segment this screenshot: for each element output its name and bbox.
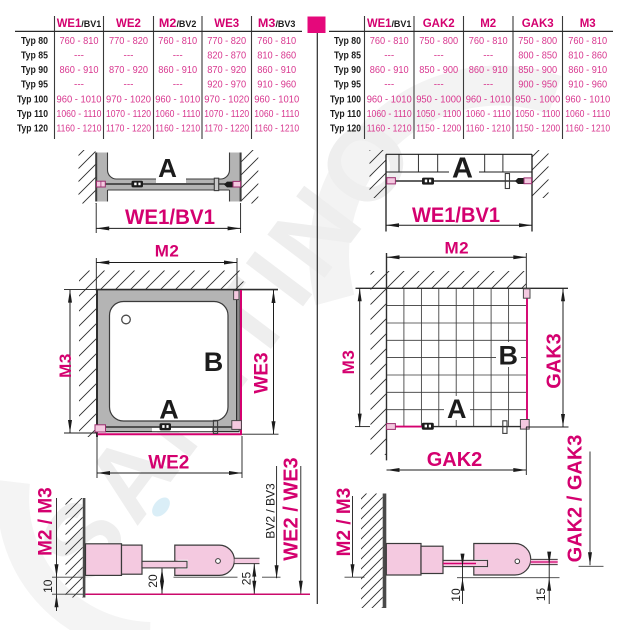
svg-text:1160 - 1210: 1160 - 1210 [155, 123, 200, 135]
svg-text:BV2 / BV3: BV2 / BV3 [263, 483, 277, 539]
svg-text:---: --- [124, 51, 134, 62]
svg-text:A: A [452, 153, 473, 185]
svg-text:810 - 860: 810 - 860 [257, 50, 296, 62]
svg-text:950 - 1000: 950 - 1000 [515, 94, 560, 106]
svg-text:770 - 820: 770 - 820 [109, 35, 148, 47]
svg-text:850 - 900: 850 - 900 [518, 64, 557, 76]
svg-text:760 - 810: 760 - 810 [60, 35, 99, 47]
svg-text:Typ 95: Typ 95 [334, 80, 361, 91]
svg-text:900 - 950: 900 - 950 [518, 79, 557, 91]
svg-text:Typ 95: Typ 95 [21, 80, 48, 91]
svg-text:970 - 1020: 970 - 1020 [204, 94, 249, 106]
svg-text:760 - 810: 760 - 810 [568, 35, 607, 47]
svg-text:1060 - 1110: 1060 - 1110 [367, 108, 412, 120]
svg-text:/BV3: /BV3 [275, 19, 295, 30]
svg-text:Typ 80: Typ 80 [334, 36, 361, 47]
svg-text:1060 - 1110: 1060 - 1110 [254, 108, 299, 120]
svg-text:A: A [159, 395, 179, 425]
svg-text:WE1: WE1 [57, 18, 82, 30]
svg-text:1060 - 1110: 1060 - 1110 [466, 108, 511, 120]
svg-text:1160 - 1210: 1160 - 1210 [565, 123, 610, 135]
svg-text:10: 10 [41, 579, 55, 593]
svg-text:M3: M3 [339, 350, 358, 375]
svg-text:---: --- [384, 80, 394, 91]
svg-text:WE3: WE3 [214, 18, 239, 30]
svg-text:---: --- [74, 51, 84, 62]
svg-text:WE2 / WE3: WE2 / WE3 [280, 457, 302, 560]
svg-text:1150 - 1200: 1150 - 1200 [416, 123, 461, 135]
svg-text:GAK2 / GAK3: GAK2 / GAK3 [565, 435, 587, 563]
svg-text:860 - 910: 860 - 910 [158, 64, 197, 76]
svg-text:/BV1: /BV1 [81, 19, 102, 30]
svg-text:750 - 800: 750 - 800 [518, 35, 557, 47]
svg-text:25: 25 [239, 572, 253, 586]
svg-text:1160 - 1210: 1160 - 1210 [57, 123, 102, 135]
svg-text:Typ 110: Typ 110 [17, 109, 48, 120]
svg-text:1070 - 1120: 1070 - 1120 [106, 108, 151, 120]
svg-text:Typ 80: Typ 80 [21, 36, 48, 47]
svg-text:960 - 1010: 960 - 1010 [367, 94, 412, 106]
svg-text:960 - 1010: 960 - 1010 [155, 94, 200, 106]
svg-text:GAK3: GAK3 [544, 333, 566, 389]
svg-text:---: --- [173, 80, 183, 91]
svg-text:Typ 120: Typ 120 [17, 124, 48, 135]
svg-text:860 - 910: 860 - 910 [60, 64, 99, 76]
svg-text:1070 - 1120: 1070 - 1120 [204, 108, 249, 120]
svg-text:760 - 810: 760 - 810 [370, 35, 409, 47]
svg-text:20: 20 [146, 574, 160, 588]
svg-text:850 - 900: 850 - 900 [419, 64, 458, 76]
svg-text:820 - 870: 820 - 870 [207, 50, 246, 62]
svg-text:860 - 910: 860 - 910 [568, 64, 607, 76]
svg-text:870 - 920: 870 - 920 [109, 64, 148, 76]
svg-text:960 - 1010: 960 - 1010 [466, 94, 511, 106]
svg-text:770 - 820: 770 - 820 [207, 35, 246, 47]
svg-text:WE1: WE1 [367, 18, 392, 30]
svg-text:A: A [447, 394, 467, 424]
svg-text:Typ 110: Typ 110 [330, 109, 361, 120]
svg-text:A: A [158, 153, 177, 183]
svg-text:Typ 90: Typ 90 [334, 65, 361, 76]
svg-text:M2: M2 [444, 239, 469, 258]
svg-text:GAK2: GAK2 [427, 449, 483, 471]
svg-text:10: 10 [449, 588, 463, 602]
svg-text:M3: M3 [56, 353, 75, 378]
svg-text:1050 - 1100: 1050 - 1100 [416, 108, 461, 120]
svg-text:Typ 100: Typ 100 [17, 95, 48, 106]
svg-text:1050 - 1100: 1050 - 1100 [515, 108, 560, 120]
svg-text:860 - 910: 860 - 910 [370, 64, 409, 76]
svg-text:M2: M2 [480, 18, 496, 30]
svg-text:GAK3: GAK3 [522, 18, 554, 30]
svg-text:15: 15 [534, 588, 548, 602]
svg-text:910 - 960: 910 - 960 [257, 79, 296, 91]
svg-text:760 - 810: 760 - 810 [469, 35, 508, 47]
svg-text:860 - 910: 860 - 910 [257, 64, 296, 76]
svg-text:/BV1: /BV1 [391, 19, 412, 30]
svg-text:1160 - 1210: 1160 - 1210 [254, 123, 299, 135]
svg-text:M3: M3 [580, 18, 596, 30]
svg-text:960 - 1010: 960 - 1010 [565, 94, 610, 106]
svg-text:760 - 810: 760 - 810 [158, 35, 197, 47]
svg-text:WE2: WE2 [116, 18, 141, 30]
svg-text:970 - 1020: 970 - 1020 [106, 94, 151, 106]
svg-text:M2 / M3: M2 / M3 [36, 487, 57, 556]
svg-text:910 - 960: 910 - 960 [568, 79, 607, 91]
svg-text:950 - 1000: 950 - 1000 [416, 94, 461, 106]
svg-text:1060 - 1110: 1060 - 1110 [565, 108, 610, 120]
svg-text:810 - 860: 810 - 860 [568, 50, 607, 62]
svg-text:---: --- [483, 80, 493, 91]
svg-text:870 - 920: 870 - 920 [207, 64, 246, 76]
svg-text:WE2: WE2 [148, 453, 189, 474]
svg-text:1060 - 1110: 1060 - 1110 [57, 108, 102, 120]
svg-text:M3: M3 [258, 18, 276, 30]
svg-text:Typ 85: Typ 85 [334, 51, 361, 62]
svg-text:WE1/BV1: WE1/BV1 [125, 206, 215, 229]
svg-text:M2 / M3: M2 / M3 [334, 488, 355, 557]
svg-text:---: --- [74, 80, 84, 91]
svg-text:---: --- [384, 51, 394, 62]
svg-text:B: B [204, 347, 224, 377]
svg-text:---: --- [173, 51, 183, 62]
svg-text:Typ 90: Typ 90 [21, 65, 48, 76]
svg-text:960 - 1010: 960 - 1010 [57, 94, 102, 106]
svg-text:M2: M2 [159, 18, 177, 30]
svg-text:1170 - 1220: 1170 - 1220 [106, 123, 151, 135]
svg-text:760 - 810: 760 - 810 [257, 35, 296, 47]
svg-text:1160 - 1210: 1160 - 1210 [367, 123, 412, 135]
svg-text:1060 - 1110: 1060 - 1110 [155, 108, 200, 120]
svg-text:Typ 100: Typ 100 [330, 95, 361, 106]
svg-text:WE1/BV1: WE1/BV1 [412, 204, 500, 227]
svg-text:Typ 85: Typ 85 [21, 51, 48, 62]
svg-text:---: --- [434, 80, 444, 91]
svg-text:920 - 970: 920 - 970 [207, 79, 246, 91]
svg-text:1170 - 1220: 1170 - 1220 [204, 123, 249, 135]
svg-text:Typ 120: Typ 120 [330, 124, 361, 135]
svg-text:/BV2: /BV2 [176, 19, 196, 30]
svg-text:---: --- [124, 80, 134, 91]
svg-text:---: --- [483, 51, 493, 62]
svg-text:1150 - 1200: 1150 - 1200 [515, 123, 560, 135]
svg-text:1160 - 1210: 1160 - 1210 [466, 123, 511, 135]
svg-text:800 - 850: 800 - 850 [518, 50, 557, 62]
svg-text:GAK2: GAK2 [423, 18, 455, 30]
svg-text:WE3: WE3 [252, 352, 273, 393]
svg-text:750 - 800: 750 - 800 [419, 35, 458, 47]
svg-text:M2: M2 [155, 242, 180, 261]
svg-text:960 - 1010: 960 - 1010 [254, 94, 299, 106]
svg-text:---: --- [434, 51, 444, 62]
svg-text:B: B [499, 341, 519, 371]
svg-text:860 - 910: 860 - 910 [469, 64, 508, 76]
